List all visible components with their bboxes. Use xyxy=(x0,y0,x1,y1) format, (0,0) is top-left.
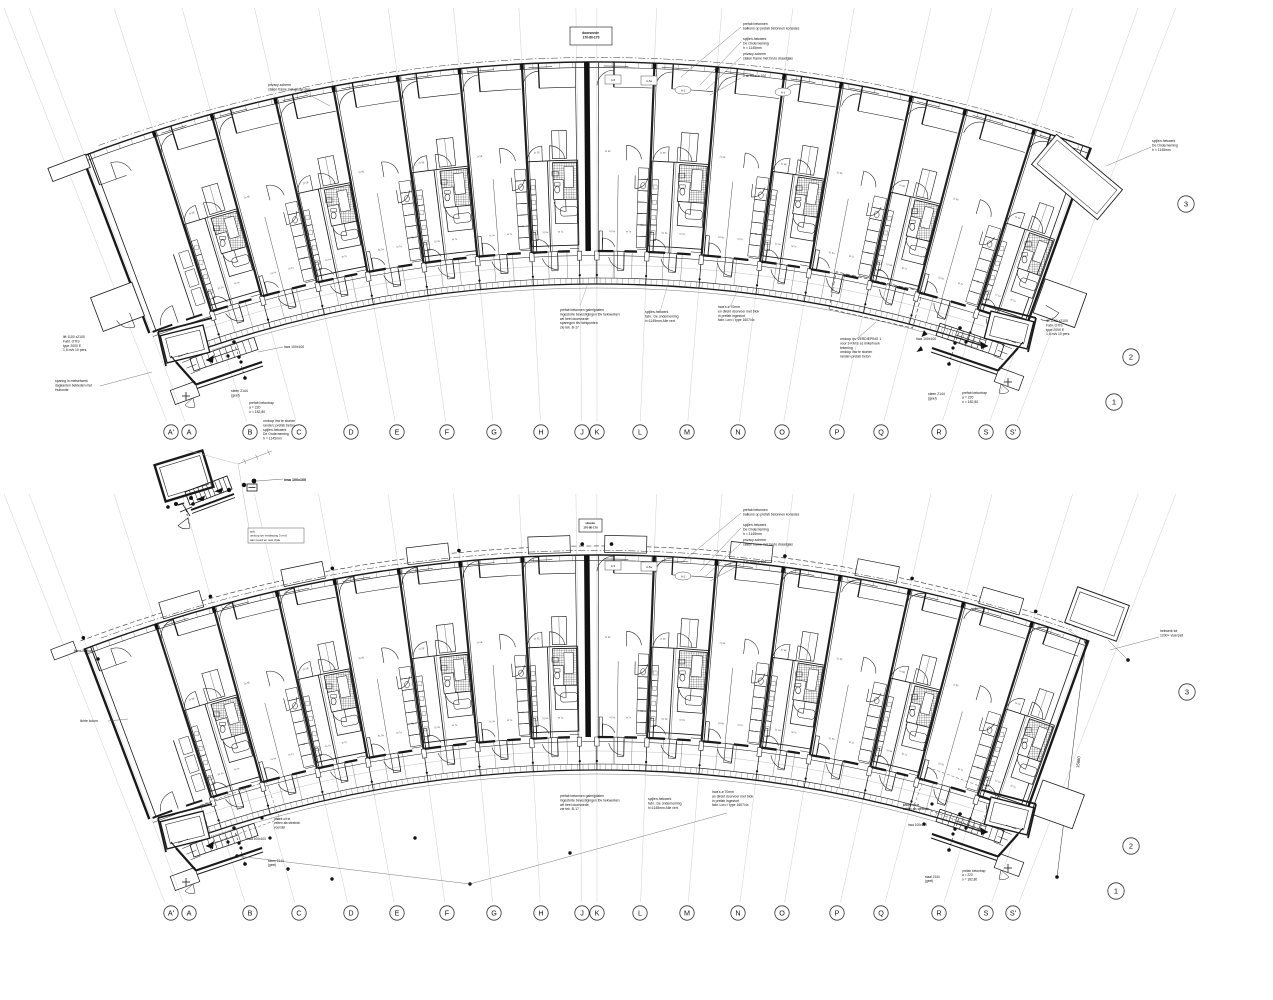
svg-text:S': S' xyxy=(1010,909,1017,918)
svg-text:2x 5E: 2x 5E xyxy=(605,637,611,639)
svg-text:M 7a: M 7a xyxy=(507,720,513,722)
svg-text:A-5: A-5 xyxy=(611,78,616,82)
svg-text:G: G xyxy=(491,428,497,437)
svg-text:E: E xyxy=(395,909,400,918)
svg-text:E: E xyxy=(395,428,400,437)
svg-text:Q: Q xyxy=(878,428,884,437)
svg-text:P: P xyxy=(835,428,840,437)
svg-text:J: J xyxy=(580,428,584,437)
svg-text:2 st. hwa ø 100: 2 st. hwa ø 100 xyxy=(743,560,766,564)
svg-text:M 7a: M 7a xyxy=(626,231,632,233)
svg-text:D: D xyxy=(348,909,353,918)
svg-text:G: G xyxy=(491,909,497,918)
svg-text:2x 5E: 2x 5E xyxy=(534,638,540,640)
svg-text:hwa 100x100: hwa 100x100 xyxy=(908,823,927,827)
svg-text:51 5a: 51 5a xyxy=(542,232,549,234)
svg-text:M 7a: M 7a xyxy=(558,231,564,233)
svg-text:2 st. hwa ø 100: 2 st. hwa ø 100 xyxy=(743,74,766,78)
svg-text:hwa 100x100: hwa 100x100 xyxy=(284,478,306,482)
svg-text:A-1: A-1 xyxy=(781,91,786,95)
svg-text:D: D xyxy=(348,428,353,437)
svg-text:51 5a: 51 5a xyxy=(661,233,668,235)
svg-text:S': S' xyxy=(1010,428,1017,437)
svg-text:F: F xyxy=(445,909,450,918)
svg-text:2x 5E: 2x 5E xyxy=(534,152,540,154)
svg-text:51 5a: 51 5a xyxy=(661,719,668,721)
svg-text:2x 5E: 2x 5E xyxy=(660,638,666,640)
svg-text:S: S xyxy=(984,428,989,437)
svg-text:51 5a: 51 5a xyxy=(542,718,549,720)
svg-text:H: H xyxy=(538,428,543,437)
svg-text:M 7a: M 7a xyxy=(507,234,513,236)
svg-text:A-5a: A-5a xyxy=(646,79,652,83)
svg-text:R: R xyxy=(936,428,941,437)
svg-text:lichte kolom: lichte kolom xyxy=(80,719,98,723)
svg-text:B: B xyxy=(248,428,253,437)
svg-text:3: 3 xyxy=(1185,688,1189,697)
svg-text:2x 5E: 2x 5E xyxy=(605,151,611,153)
svg-text:A: A xyxy=(187,428,192,437)
svg-text:M 7a: M 7a xyxy=(626,717,632,719)
svg-text:1: 1 xyxy=(1112,398,1116,407)
svg-text:51 5a: 51 5a xyxy=(609,717,616,719)
svg-text:M 7a: M 7a xyxy=(679,234,685,236)
svg-text:doorsnede 170-80-170: doorsnede 170-80-170 xyxy=(582,31,600,39)
svg-text:A-5: A-5 xyxy=(611,564,616,568)
svg-text:J: J xyxy=(580,909,584,918)
svg-text:O: O xyxy=(779,428,785,437)
svg-text:Q: Q xyxy=(878,909,884,918)
svg-text:A-1: A-1 xyxy=(681,575,686,579)
svg-text:B: B xyxy=(248,909,253,918)
svg-text:2: 2 xyxy=(1129,842,1133,851)
svg-text:A: A xyxy=(187,909,192,918)
svg-text:O: O xyxy=(779,909,785,918)
svg-text:M 7a: M 7a xyxy=(679,720,685,722)
svg-text:K: K xyxy=(595,909,600,918)
svg-text:L: L xyxy=(638,909,642,918)
svg-text:hwa 100x100: hwa 100x100 xyxy=(284,345,304,349)
svg-text:1: 1 xyxy=(1114,887,1118,896)
svg-text:K: K xyxy=(595,428,600,437)
svg-text:P: P xyxy=(835,909,840,918)
svg-text:M: M xyxy=(684,428,690,437)
svg-text:S: S xyxy=(984,909,989,918)
svg-text:M: M xyxy=(684,909,690,918)
svg-text:H: H xyxy=(538,909,543,918)
svg-text:2x 5E: 2x 5E xyxy=(660,152,666,154)
svg-text:A': A' xyxy=(168,909,175,918)
svg-text:M 7a: M 7a xyxy=(558,717,564,719)
svg-text:F: F xyxy=(445,428,450,437)
svg-text:A-1: A-1 xyxy=(681,89,686,93)
svg-text:hwa 100x100: hwa 100x100 xyxy=(247,837,266,841)
svg-text:hwa 100x100: hwa 100x100 xyxy=(916,337,936,341)
svg-text:C: C xyxy=(296,428,301,437)
svg-text:51 5a: 51 5a xyxy=(609,231,616,233)
svg-text:A': A' xyxy=(168,428,175,437)
svg-text:frans balkon: frans balkon xyxy=(74,649,93,653)
svg-text:N: N xyxy=(735,428,740,437)
svg-text:A-5a: A-5a xyxy=(646,565,652,569)
svg-text:2: 2 xyxy=(1129,353,1133,362)
svg-text:N: N xyxy=(735,909,740,918)
svg-text:L: L xyxy=(638,428,642,437)
svg-text:C: C xyxy=(296,909,301,918)
svg-text:R: R xyxy=(936,909,941,918)
svg-text:3: 3 xyxy=(1184,200,1188,209)
